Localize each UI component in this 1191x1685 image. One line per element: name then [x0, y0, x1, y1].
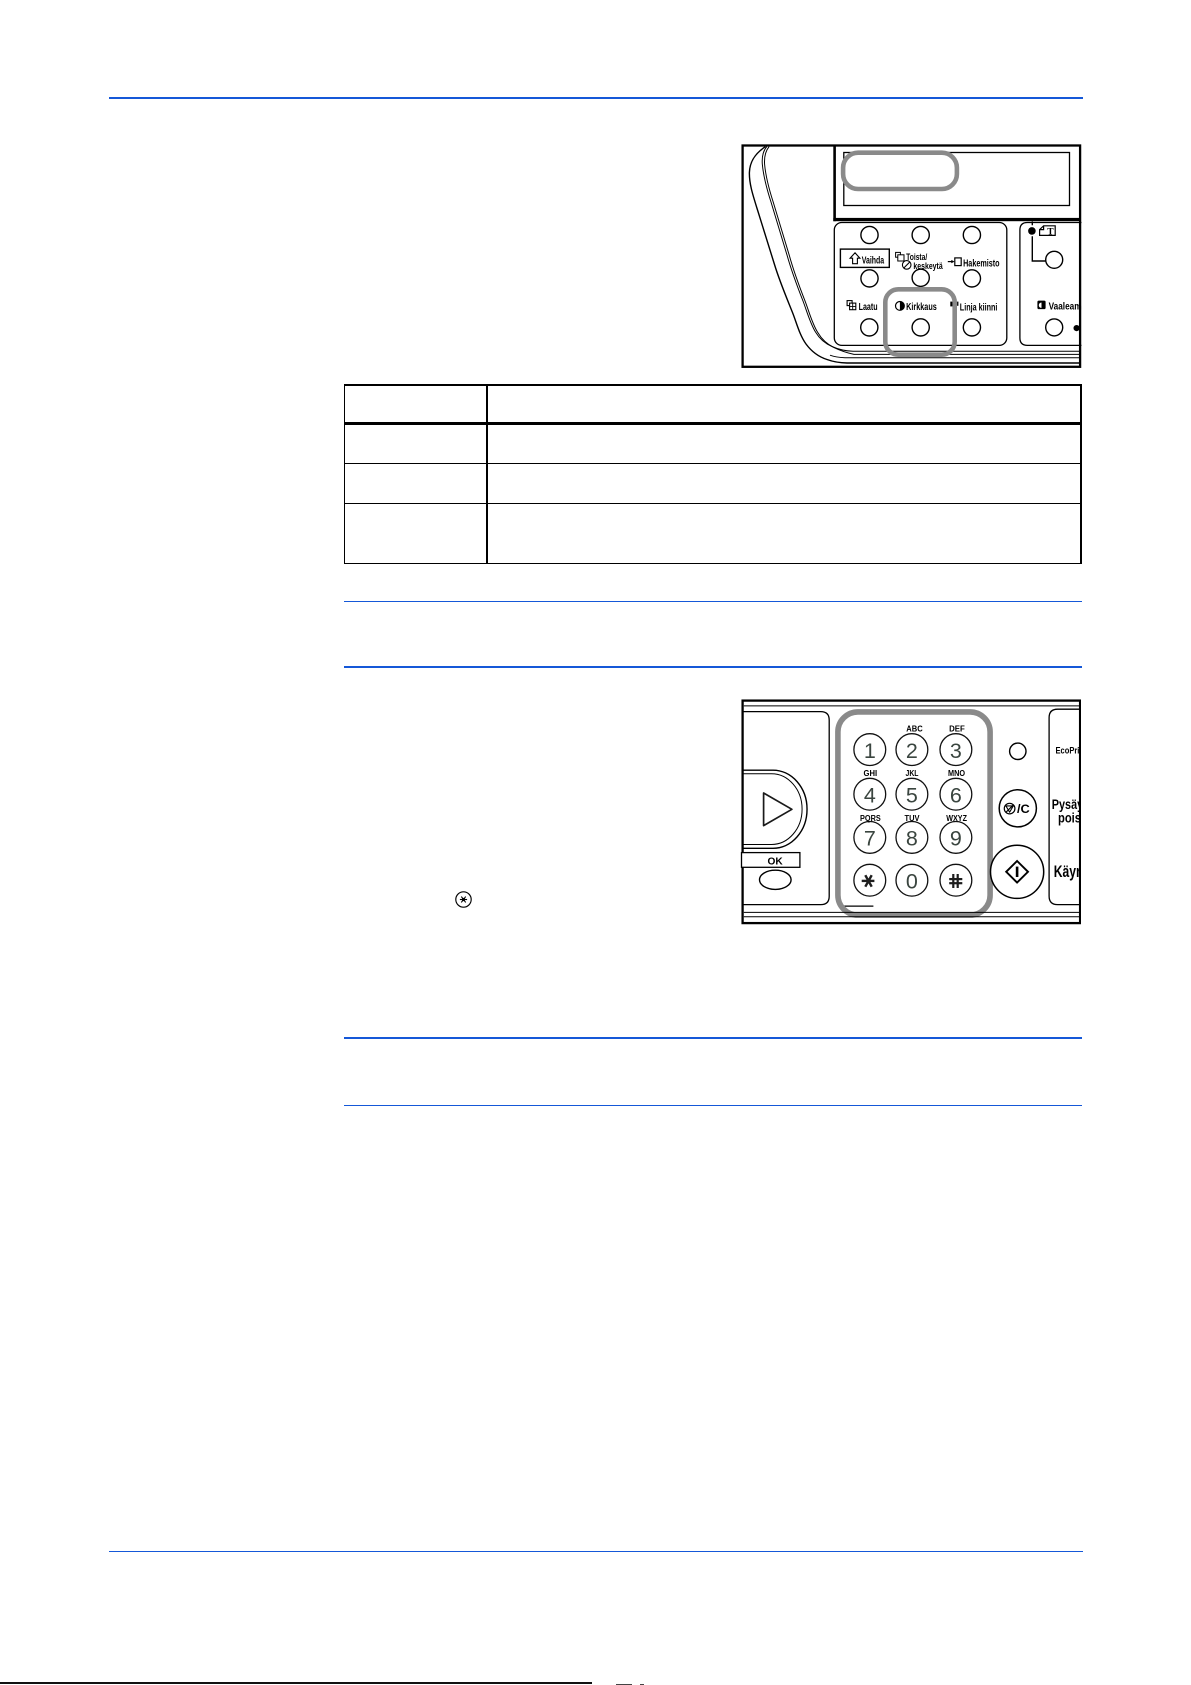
svg-text:DEF: DEF	[949, 725, 965, 734]
svg-text:0: 0	[906, 870, 918, 894]
svg-text:OK: OK	[768, 855, 784, 867]
svg-text:TUV: TUV	[905, 814, 921, 823]
svg-text:WXYZ: WXYZ	[946, 814, 967, 823]
svg-text:/C: /C	[1017, 802, 1030, 816]
svg-text:2: 2	[906, 739, 918, 763]
svg-text:ABC: ABC	[906, 725, 923, 734]
svg-text:1: 1	[864, 739, 876, 763]
svg-text:PQRS: PQRS	[860, 814, 881, 823]
svg-text:GHI: GHI	[864, 769, 878, 778]
svg-text:7: 7	[864, 827, 876, 851]
svg-text:Linja kiinni: Linja kiinni	[960, 303, 998, 314]
svg-text:MNO: MNO	[948, 769, 965, 778]
svg-text:Vaaleam: Vaaleam	[1049, 302, 1082, 313]
svg-text:JKL: JKL	[906, 769, 919, 778]
svg-text:6: 6	[950, 784, 962, 808]
svg-text:5: 5	[906, 784, 918, 808]
svg-text:Käynnistä: Käynnistä	[1054, 863, 1081, 881]
svg-text:Hakemisto: Hakemisto	[963, 258, 1000, 269]
svg-text:3: 3	[950, 739, 962, 763]
svg-text:EcoPrint: EcoPrint	[1056, 745, 1082, 755]
svg-text:T: T	[1047, 227, 1054, 237]
svg-text:poista: poista	[1058, 811, 1081, 826]
svg-text:Kirkkaus: Kirkkaus	[906, 302, 937, 313]
svg-text:Laatu: Laatu	[859, 302, 878, 313]
svg-text:8: 8	[906, 827, 918, 851]
svg-text:Vaihda: Vaihda	[862, 255, 885, 266]
svg-text:9: 9	[950, 827, 962, 851]
svg-text:4: 4	[864, 784, 876, 808]
svg-text:keskeytä: keskeytä	[913, 261, 943, 272]
